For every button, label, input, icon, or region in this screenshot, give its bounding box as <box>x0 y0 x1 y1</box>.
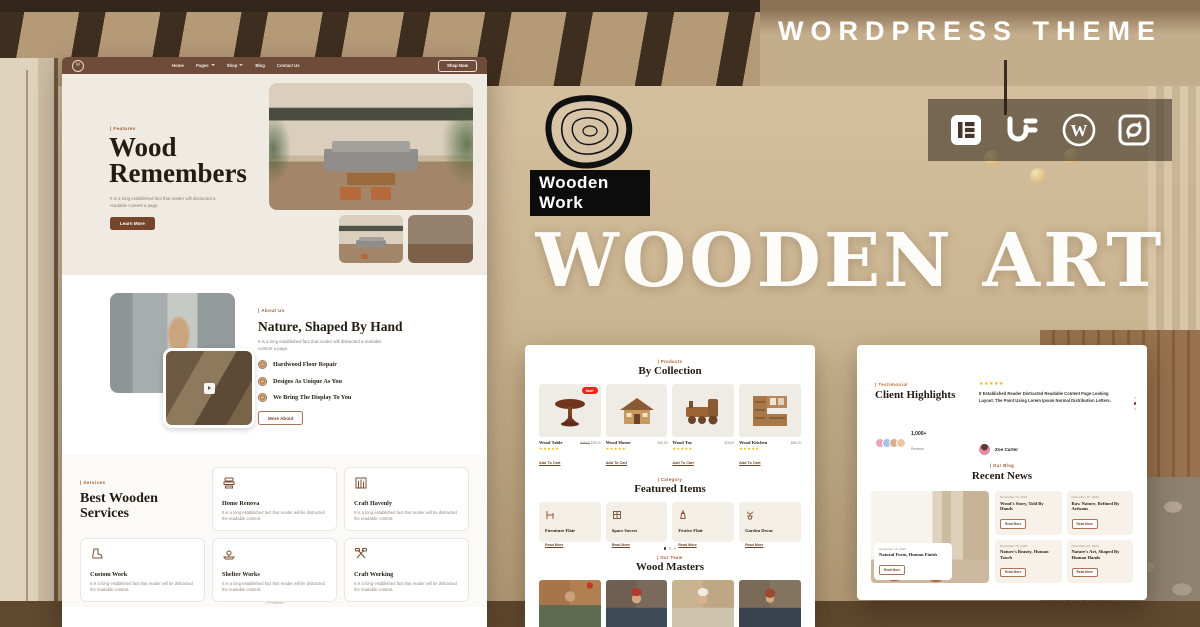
hand-plane-icon <box>222 547 236 561</box>
hero-label: | Features <box>110 126 136 131</box>
wordpress-theme-label: WORDPRESS THEME <box>778 16 1162 47</box>
blog-posts: November 15, 2023 Wood's Story, Told By … <box>995 491 1133 583</box>
nav-blog[interactable]: Blog <box>255 63 265 68</box>
blog-post-card[interactable]: November 15, 2023 Raw Nature, Refined By… <box>1067 491 1134 535</box>
category-list: Furniture Flair Read More Space Savers R… <box>539 502 801 542</box>
site-logo[interactable]: W <box>72 60 84 72</box>
background-door <box>0 58 58 627</box>
testimonial-title: Client Highlights <box>875 390 985 402</box>
plugin-icons-bar: W <box>928 99 1172 161</box>
ottoman <box>371 187 391 200</box>
post-date: November 15, 2023 <box>1000 495 1057 499</box>
product-name[interactable]: Wood House <box>606 440 631 445</box>
testimonial-quote: It Established Reader Distracted Readabl… <box>979 390 1119 405</box>
blog-screenshot: | Testimonial Client Highlights 1,000+ R… <box>857 345 1147 600</box>
hero-section: | Features Wood Remembers It is a long e… <box>62 74 487 275</box>
main-nav: Home Pages Shop Blog Contact Us <box>172 63 300 68</box>
product-name[interactable]: Wood Kitchen <box>739 440 767 445</box>
service-title: Shelter Works <box>222 571 327 578</box>
rating-stars: ★★★★★ <box>606 446 668 451</box>
team-photo-red-beanie <box>606 580 668 627</box>
service-card[interactable]: Craft Havenly It is a long established f… <box>344 467 469 531</box>
team-label: | Our Team <box>539 555 801 560</box>
sync-icon <box>1117 113 1151 147</box>
post-title: Raw Nature, Refined By Artisans <box>1072 501 1129 512</box>
products-title: By Collection <box>539 365 801 377</box>
category-card[interactable]: Space Savers Read More <box>606 502 668 542</box>
featured-post-card[interactable]: November 15, 2023 Natural Form, Human Fi… <box>874 543 952 580</box>
service-card[interactable]: Custom Work It is a long established fac… <box>80 538 205 602</box>
about-section: | About Us Nature, Shaped By Hand It is … <box>62 275 487 455</box>
wooden-work-logo: Wooden Work <box>530 92 650 202</box>
site-header: W Home Pages Shop Blog Contact Us Shop N… <box>62 57 487 74</box>
category-card[interactable]: Furniture Flair Read More <box>539 502 601 542</box>
rating-stars: ★★★★★ <box>672 446 734 451</box>
read-more-button[interactable]: Read More <box>1072 519 1098 529</box>
service-card[interactable]: Craft Working It is a long established f… <box>344 538 469 602</box>
about-title: Nature, Shaped By Hand <box>258 320 448 334</box>
product-card[interactable]: Wood Kitchen $55.00 ★★★★★ Add To Cart <box>739 384 801 469</box>
add-to-cart-link[interactable]: Add To Cart <box>672 461 693 465</box>
theme-promo-banner: WORDPRESS THEME W <box>0 0 1200 627</box>
sofa <box>324 149 418 171</box>
forest-icon <box>354 476 368 490</box>
feature-label: Designs As Unique As You <box>273 378 342 385</box>
hero-title: Wood Remembers <box>109 134 269 187</box>
about-feature: We Bring The Display To You <box>258 393 448 402</box>
shop-now-button[interactable]: Shop Now <box>438 60 477 72</box>
testimonial-label: | Testimonial <box>875 382 908 387</box>
service-title: Craft Working <box>354 571 459 578</box>
category-name: Space Savers <box>612 528 662 533</box>
nav-shop[interactable]: Shop <box>227 63 244 68</box>
post-date: November 15, 2023 <box>1000 544 1057 548</box>
review-count-sub: Reviews <box>911 447 924 451</box>
hero-body: It is a long established fact that reade… <box>110 196 230 210</box>
post-date: November 15, 2023 <box>1072 544 1129 548</box>
post-title: Natural Form, Human Finish <box>879 552 947 558</box>
service-card[interactable]: Home Renova It is a long established fac… <box>212 467 337 531</box>
team-title: Wood Masters <box>539 561 801 573</box>
read-more-button[interactable]: Read More <box>879 565 905 575</box>
service-title: Craft Havenly <box>354 500 459 507</box>
product-list: Sale! Wood Table $49.00$39.00 ★★★★★ Add … <box>539 384 801 469</box>
product-image-kitchen <box>739 384 801 437</box>
coffee-table <box>347 173 396 184</box>
next-section-label: | Products <box>62 600 487 605</box>
read-more-button[interactable]: Read More <box>1072 568 1098 578</box>
author-name: Zoe Carter <box>995 447 1018 452</box>
team-list <box>539 580 801 627</box>
product-name[interactable]: Wood Table <box>539 440 562 445</box>
category-link[interactable]: Read More <box>678 543 696 547</box>
rating-stars: ★★★★★ <box>739 446 801 451</box>
service-body: It is a long established fact that reade… <box>354 510 459 523</box>
sofa <box>356 240 386 248</box>
services-title: Best Wooden Services <box>80 492 190 521</box>
products-label: | Products <box>539 359 801 364</box>
homepage-screenshot: W Home Pages Shop Blog Contact Us Shop N… <box>62 57 487 627</box>
team-photo-bearded-man <box>539 580 601 627</box>
category-link[interactable]: Read More <box>612 543 630 547</box>
logo-text: Wooden Work <box>530 170 650 216</box>
chandelier-globe <box>1030 168 1046 184</box>
price: $45.00 <box>658 441 668 445</box>
gallery-thumb-kitchen[interactable] <box>269 215 334 263</box>
testimonial-carousel-dots[interactable] <box>1134 397 1136 410</box>
plant-pot-icon <box>745 510 755 520</box>
services-label: | Services <box>80 480 105 485</box>
add-to-cart-link[interactable]: Add To Cart <box>739 461 760 465</box>
feature-label: Hardwood Floor Repair <box>273 361 337 368</box>
hero-gallery <box>269 215 473 263</box>
play-icon[interactable] <box>204 383 215 394</box>
more-about-button[interactable]: More About <box>258 411 303 425</box>
category-card[interactable]: Festive Flair Read More <box>672 502 734 542</box>
read-more-button[interactable]: Read More <box>1000 568 1026 578</box>
wordpress-icon: W <box>1061 112 1097 148</box>
service-title: Home Renova <box>222 500 327 507</box>
post-date: November 15, 2023 <box>1072 495 1129 499</box>
service-card[interactable]: Shelter Works It is a long established f… <box>212 538 337 602</box>
svg-text:W: W <box>1071 121 1088 140</box>
nav-contact[interactable]: Contact Us <box>277 63 300 68</box>
theme-title: WOODEN ART <box>505 218 1195 304</box>
reviewer-avatars: 1,000+ Reviews <box>875 431 926 455</box>
add-to-cart-link[interactable]: Add To Cart <box>606 461 627 465</box>
blog-label: | Our Blog <box>857 463 1147 468</box>
post-title: Nature's Art, Shaped By Human Hands <box>1072 549 1129 560</box>
service-body: It is a long established fact that reade… <box>222 510 327 523</box>
unlimited-elements-icon <box>1003 113 1041 147</box>
chair-icon <box>545 510 555 520</box>
team-photo-apron-woman <box>739 580 801 627</box>
crossed-hammers-icon <box>354 547 368 561</box>
about-label: | About Us <box>258 308 285 313</box>
elementor-icon <box>949 113 983 147</box>
services-section: | Services Best Wooden Services Home Ren… <box>62 455 487 607</box>
services-heading: | Services Best Wooden Services <box>80 467 205 531</box>
background-door-frame <box>26 70 28 627</box>
sale-badge: Sale! <box>582 387 598 394</box>
nav-pages[interactable]: Pages <box>196 63 215 68</box>
blog-post-card[interactable]: November 15, 2023 Nature's Beauty, Human… <box>995 540 1062 584</box>
avatar <box>896 438 906 448</box>
featured-post-photo[interactable]: November 15, 2023 Natural Form, Human Fi… <box>871 491 989 583</box>
category-link[interactable]: Read More <box>545 543 563 547</box>
ottoman <box>340 187 360 200</box>
service-body: It is a long established fact that reade… <box>354 581 459 594</box>
read-more-button[interactable]: Read More <box>1000 519 1026 529</box>
about-body: It is a long established fact that reade… <box>258 339 388 353</box>
about-content: | About Us Nature, Shaped By Hand It is … <box>258 299 448 425</box>
category-name: Festive Flair <box>678 528 728 533</box>
post-title: Nature's Beauty, Human Touch <box>1000 549 1057 560</box>
press-icon <box>222 476 236 490</box>
learn-more-button[interactable]: Learn More <box>110 217 155 230</box>
price: $55.00 <box>791 441 801 445</box>
rating-stars: ★★★★★ <box>539 446 601 451</box>
hero-photo-living-room <box>269 83 473 210</box>
testimonial-author: Zoe Carter <box>979 444 1018 455</box>
service-body: It is a long established fact that reade… <box>90 581 195 594</box>
category-card[interactable]: Garden Decor Read More <box>739 502 801 542</box>
product-name[interactable]: Wood Toy <box>672 440 692 445</box>
testimonial-stars: ★★★★★ <box>979 381 1004 387</box>
lantern-icon <box>678 510 688 520</box>
blog-grid: November 15, 2023 Natural Form, Human Fi… <box>871 491 1133 583</box>
old-price: $49.00 <box>580 441 590 445</box>
blog-post-card[interactable]: November 15, 2023 Wood's Story, Told By … <box>995 491 1062 535</box>
about-feature: Hardwood Floor Repair <box>258 360 448 369</box>
add-to-cart-link[interactable]: Add To Cart <box>539 461 560 465</box>
category-title: Featured Items <box>539 483 801 495</box>
about-feature: Designs As Unique As You <box>258 377 448 386</box>
about-photo-carving <box>163 348 255 428</box>
boot-icon <box>90 547 104 561</box>
product-image-house <box>606 384 668 437</box>
wood-ring-icon <box>258 393 267 402</box>
category-label: | Category <box>539 477 801 482</box>
ottoman <box>361 254 367 259</box>
service-body: It is a long established fact that reade… <box>222 581 327 594</box>
gallery-thumb-dimmed[interactable] <box>408 215 473 263</box>
nav-home[interactable]: Home <box>172 63 184 68</box>
shop-screenshot: | Products By Collection Sale! Wood Tabl… <box>525 345 815 627</box>
product-card[interactable]: Wood Toy $25.00 ★★★★★ Add To Cart <box>672 384 734 469</box>
wood-ring-icon <box>258 360 267 369</box>
category-name: Garden Decor <box>745 528 795 533</box>
shelf-icon <box>612 510 622 520</box>
feature-label: We Bring The Display To You <box>273 394 351 401</box>
category-name: Furniture Flair <box>545 528 595 533</box>
blog-post-card[interactable]: November 15, 2023 Nature's Art, Shaped B… <box>1067 540 1134 584</box>
category-link[interactable]: Read More <box>745 543 763 547</box>
post-title: Wood's Story, Told By Hands <box>1000 501 1057 512</box>
gallery-thumb-living[interactable] <box>339 215 404 263</box>
product-card[interactable]: Wood House $45.00 ★★★★★ Add To Cart <box>606 384 668 469</box>
product-card[interactable]: Sale! Wood Table $49.00$39.00 ★★★★★ Add … <box>539 384 601 469</box>
price: $25.00 <box>724 441 734 445</box>
author-avatar <box>979 444 990 455</box>
wood-ring-icon <box>258 377 267 386</box>
review-count: 1,000+ <box>911 431 926 437</box>
post-date: November 15, 2023 <box>879 547 947 551</box>
blog-title: Recent News <box>857 470 1147 482</box>
team-photo-hard-hat <box>672 580 734 627</box>
product-image-toy-train <box>672 384 734 437</box>
price: $39.00 <box>591 441 601 445</box>
service-title: Custom Work <box>90 571 195 578</box>
